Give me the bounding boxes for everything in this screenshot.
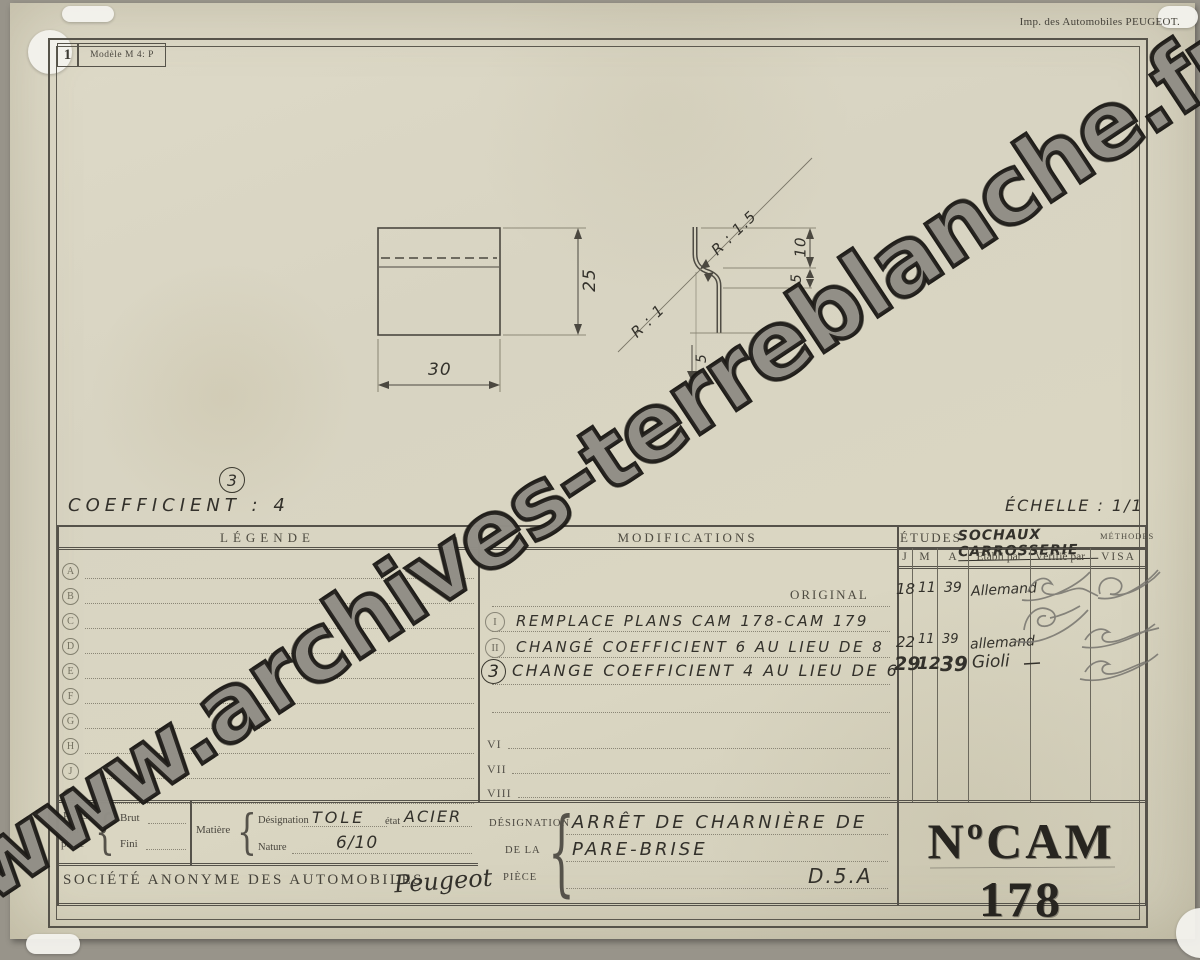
legende-letter: D	[62, 638, 79, 655]
etat-value: ACIER	[404, 807, 462, 826]
date-year: 39	[944, 580, 962, 596]
etat-label: état	[385, 816, 400, 827]
legende-letter: J	[62, 763, 79, 780]
modification-rule	[512, 773, 890, 774]
fini-value-line	[146, 849, 186, 850]
legende-row: J	[62, 760, 474, 782]
dim-profile-top: 10	[792, 236, 810, 257]
dim-width: 30	[428, 360, 452, 380]
designation-value: TOLE	[312, 808, 365, 827]
etudes-col-line	[937, 548, 938, 802]
legende-dotted-line	[85, 728, 474, 729]
legende-letter: C	[62, 613, 79, 630]
date-year: 39	[940, 652, 968, 676]
nature-line	[292, 853, 472, 854]
modification-rule	[492, 684, 890, 685]
scanned-drawing-page: 1 Modèle M 4: P Imp. des Automobiles PEU…	[0, 0, 1200, 960]
legende-row: A	[62, 560, 474, 582]
etudes-title: ÉTUDES	[900, 530, 958, 546]
model-box: Modèle M 4: P	[78, 43, 166, 67]
poids-label: Poids	[63, 810, 87, 822]
legende-letter: K	[62, 788, 79, 805]
modification-rule	[508, 748, 890, 749]
modification-rule	[492, 606, 890, 607]
legende-letter: F	[62, 688, 79, 705]
legende-title: LÉGENDE	[57, 530, 478, 546]
photo-corner-tab	[62, 6, 114, 22]
legende-dotted-line	[85, 603, 474, 604]
nature-value: 6/10	[336, 833, 378, 853]
printer-imprint: Imp. des Automobiles PEUGEOT.	[950, 16, 1180, 28]
col-header-m: M	[912, 551, 937, 563]
piece-ref: D.5.A	[808, 864, 873, 888]
piece-name-line	[566, 834, 888, 835]
legende-dotted-line	[85, 753, 474, 754]
modification-text: REMPLACE PLANS CAM 178-CAM 179	[516, 612, 869, 630]
scale-note: ÉCHELLE : 1/1	[1005, 496, 1144, 515]
table-left-border	[57, 525, 59, 905]
brace: {	[548, 798, 575, 907]
legende-letter: H	[62, 738, 79, 755]
etudes-col-line	[968, 548, 969, 802]
date-month: 11	[918, 632, 935, 647]
legende-dotted-line	[85, 703, 474, 704]
methodes-label: MÉTHODES	[1100, 531, 1146, 541]
col-header-etabli: Etabli par	[968, 551, 1030, 563]
date-year: 39	[942, 632, 959, 647]
modification-text: CHANGE COEFFICIENT 4 AU LIEU DE 6	[512, 661, 899, 680]
piece-name: PARE-BRISE	[572, 839, 708, 860]
piece-label: DE LA	[505, 845, 541, 856]
col-header-a: A	[937, 551, 968, 563]
modification-mark: I	[485, 612, 505, 632]
legende-dotted-line	[85, 653, 474, 654]
etudes-col-line	[1090, 548, 1091, 802]
empty-row-label: VI	[487, 737, 502, 752]
modification-mark: 3	[481, 659, 506, 684]
legende-letter: E	[62, 663, 79, 680]
matiere-label: Matière	[196, 824, 230, 836]
poids-label: par	[66, 824, 80, 836]
etudes-colhead-underline	[897, 566, 1147, 569]
revision-mark: 3	[219, 467, 245, 493]
brace: {	[237, 804, 257, 860]
poids-divider	[190, 800, 192, 865]
brut-value-line	[148, 823, 186, 824]
legende-letter: G	[62, 713, 79, 730]
modification-rule	[492, 712, 890, 713]
societe-divider	[57, 863, 478, 866]
etat-line	[402, 826, 472, 827]
piece-name: ARRÊT DE CHARNIÈRE DE	[572, 812, 867, 833]
empty-row-label: VIII	[487, 786, 512, 801]
piece-label: PIÈCE	[503, 872, 537, 883]
original-label: ORIGINAL	[790, 587, 869, 603]
legende-row: E	[62, 660, 474, 682]
legende-letter: A	[62, 563, 79, 580]
date-day: 18	[896, 580, 915, 598]
legende-dotted-line	[85, 628, 474, 629]
societe-name: SOCIÉTÉ ANONYME DES AUTOMOBILES	[63, 872, 424, 889]
drawing-number-stamp: NºCAM 178	[897, 812, 1145, 928]
brut-label: Brut	[120, 812, 140, 824]
divider-legende-modifications	[478, 525, 480, 802]
legende-row: H	[62, 735, 474, 757]
legende-row: F	[62, 685, 474, 707]
modification-rule	[492, 631, 890, 632]
legende-row: C	[62, 610, 474, 632]
legende-row: G	[62, 710, 474, 732]
modifications-title: MODIFICATIONS	[478, 530, 897, 546]
sheet-number-box: 1	[57, 43, 78, 67]
legende-letter: B	[62, 588, 79, 605]
legende-dotted-line	[85, 803, 474, 804]
table-right-border	[1145, 525, 1147, 905]
col-header-j: J	[897, 551, 912, 563]
modification-rule	[492, 657, 890, 658]
dim-height: 25	[580, 268, 600, 292]
photo-corner-tab	[26, 934, 80, 954]
dim-profile-bottom: 5	[694, 353, 710, 363]
etabli-name: Gioli	[972, 651, 1010, 672]
brace: {	[95, 804, 115, 860]
legende-row: B	[62, 585, 474, 607]
empty-row-label: VII	[487, 762, 507, 777]
table-top-border	[57, 525, 1147, 527]
legende-dotted-line	[85, 678, 474, 679]
date-month: 11	[918, 580, 936, 596]
poids-label: pièce	[61, 838, 84, 850]
modification-text: CHANGÉ COEFFICIENT 6 AU LIEU DE 8	[516, 638, 884, 656]
piece-name-line	[566, 888, 888, 889]
col-header-verifie: Vérifié par	[1030, 551, 1090, 563]
date-month: 12	[917, 654, 941, 674]
etabli-name: allemand	[970, 633, 1036, 652]
dim-profile-mid: 5	[789, 273, 805, 283]
piece-name-line	[566, 861, 888, 862]
etudes-line	[897, 548, 1147, 549]
modification-mark: II	[485, 638, 505, 658]
legende-dotted-line	[85, 578, 474, 579]
date-day: 22	[896, 633, 915, 651]
legende-dotted-line	[85, 778, 474, 779]
coefficient-note: COEFFICIENT : 4	[68, 495, 290, 516]
designation-label: Désignation	[258, 815, 309, 826]
col-header-visa: VISA	[1090, 551, 1147, 563]
nature-label: Nature	[258, 842, 287, 853]
legende-row: K	[62, 785, 474, 807]
legende-row: D	[62, 635, 474, 657]
fini-label: Fini	[120, 838, 138, 850]
